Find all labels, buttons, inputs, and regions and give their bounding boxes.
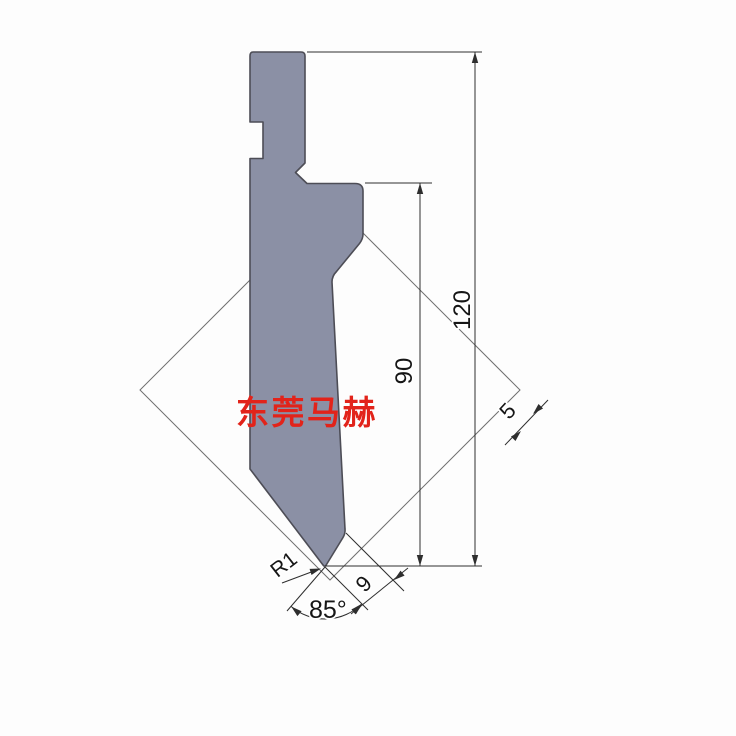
- dim-120-label: 120: [449, 290, 476, 330]
- dim-90-label: 90: [391, 358, 418, 385]
- watermark-text: 东莞马赫: [236, 393, 378, 432]
- technical-drawing-canvas: 120 90 5 9 85° R1 东莞马赫: [0, 0, 736, 736]
- angle-85-label: 85°: [309, 596, 347, 624]
- drawing-background: [0, 0, 736, 736]
